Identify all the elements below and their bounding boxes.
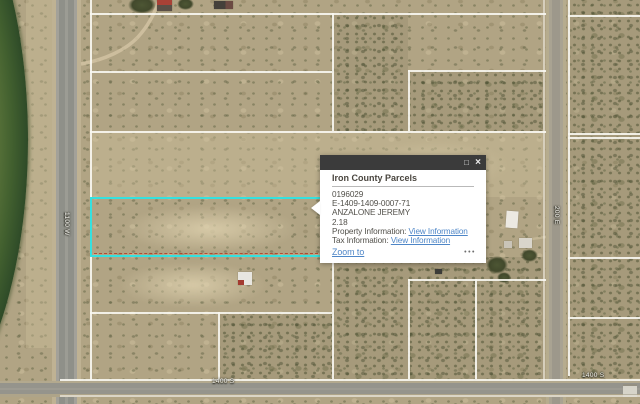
parcel-line (90, 312, 332, 314)
zoom-to-link[interactable]: Zoom to (332, 247, 364, 257)
parcel-line (568, 317, 640, 319)
parcel-line (408, 279, 546, 281)
tax-info-row: Tax Information: View Information (332, 236, 474, 245)
owner-name: ANZALONE JEREMY (332, 208, 474, 217)
parcel-line (408, 279, 410, 379)
building (214, 1, 233, 9)
tax-info-link[interactable]: View Information (391, 236, 450, 245)
building (519, 238, 532, 248)
parcel-line (60, 395, 640, 397)
tree (521, 249, 538, 262)
popup-footer: Zoom to ••• (332, 247, 476, 257)
road-label-1400s-right: 1400 S (582, 372, 604, 379)
popup-callout-arrow (311, 201, 320, 215)
road-label-200e: 200 E (553, 206, 560, 225)
property-info-link[interactable]: View Information (409, 227, 468, 236)
parcel-line (332, 13, 334, 131)
parcel-line (568, 15, 640, 17)
acreage: 2.18 (332, 218, 474, 227)
popup-header: □ × (320, 155, 486, 170)
parcel-line (332, 257, 334, 379)
more-options-icon[interactable]: ••• (464, 249, 476, 256)
tree (497, 272, 511, 283)
parcel-line (408, 70, 546, 72)
vehicle (435, 269, 442, 274)
parcel-line (475, 279, 477, 379)
parcel-line (90, 0, 92, 380)
building (505, 211, 518, 229)
parcel-line (60, 379, 640, 381)
building (157, 0, 172, 11)
parcel-number: 0196029 (332, 190, 474, 199)
parcel-subline (94, 253, 318, 254)
feature-popup: □ × Iron County Parcels 0196029 E-1409-1… (320, 155, 486, 263)
parcel-line (568, 137, 640, 139)
parcel-line (568, 133, 640, 135)
parcel-line (90, 71, 332, 73)
parcel-line (90, 13, 546, 15)
map-canvas[interactable]: 1100 W 200 E 1400 S 1400 S □ × Iron Coun… (0, 0, 640, 404)
road-label-1400s-left: 1400 S (212, 378, 234, 385)
parcel-line (90, 131, 546, 133)
parcel-line (408, 70, 410, 131)
serial-number: E-1409-1409-0007-71 (332, 199, 474, 208)
parcel-line (568, 257, 640, 259)
tax-info-label: Tax Information: (332, 236, 391, 245)
property-info-row: Property Information: View Information (332, 227, 474, 236)
popup-title: Iron County Parcels (320, 170, 486, 185)
building (238, 280, 244, 285)
building (504, 241, 512, 248)
popup-divider (332, 186, 474, 187)
road-label-1100w: 1100 W (63, 212, 70, 236)
close-icon[interactable]: × (475, 155, 481, 170)
parcel-line (543, 0, 545, 380)
property-info-label: Property Information: (332, 227, 409, 236)
popup-body: 0196029 E-1409-1409-0007-71 ANZALONE JER… (320, 189, 486, 245)
parcel-line (568, 0, 570, 376)
parcel-line (218, 312, 220, 379)
dock-icon[interactable]: □ (464, 155, 469, 170)
